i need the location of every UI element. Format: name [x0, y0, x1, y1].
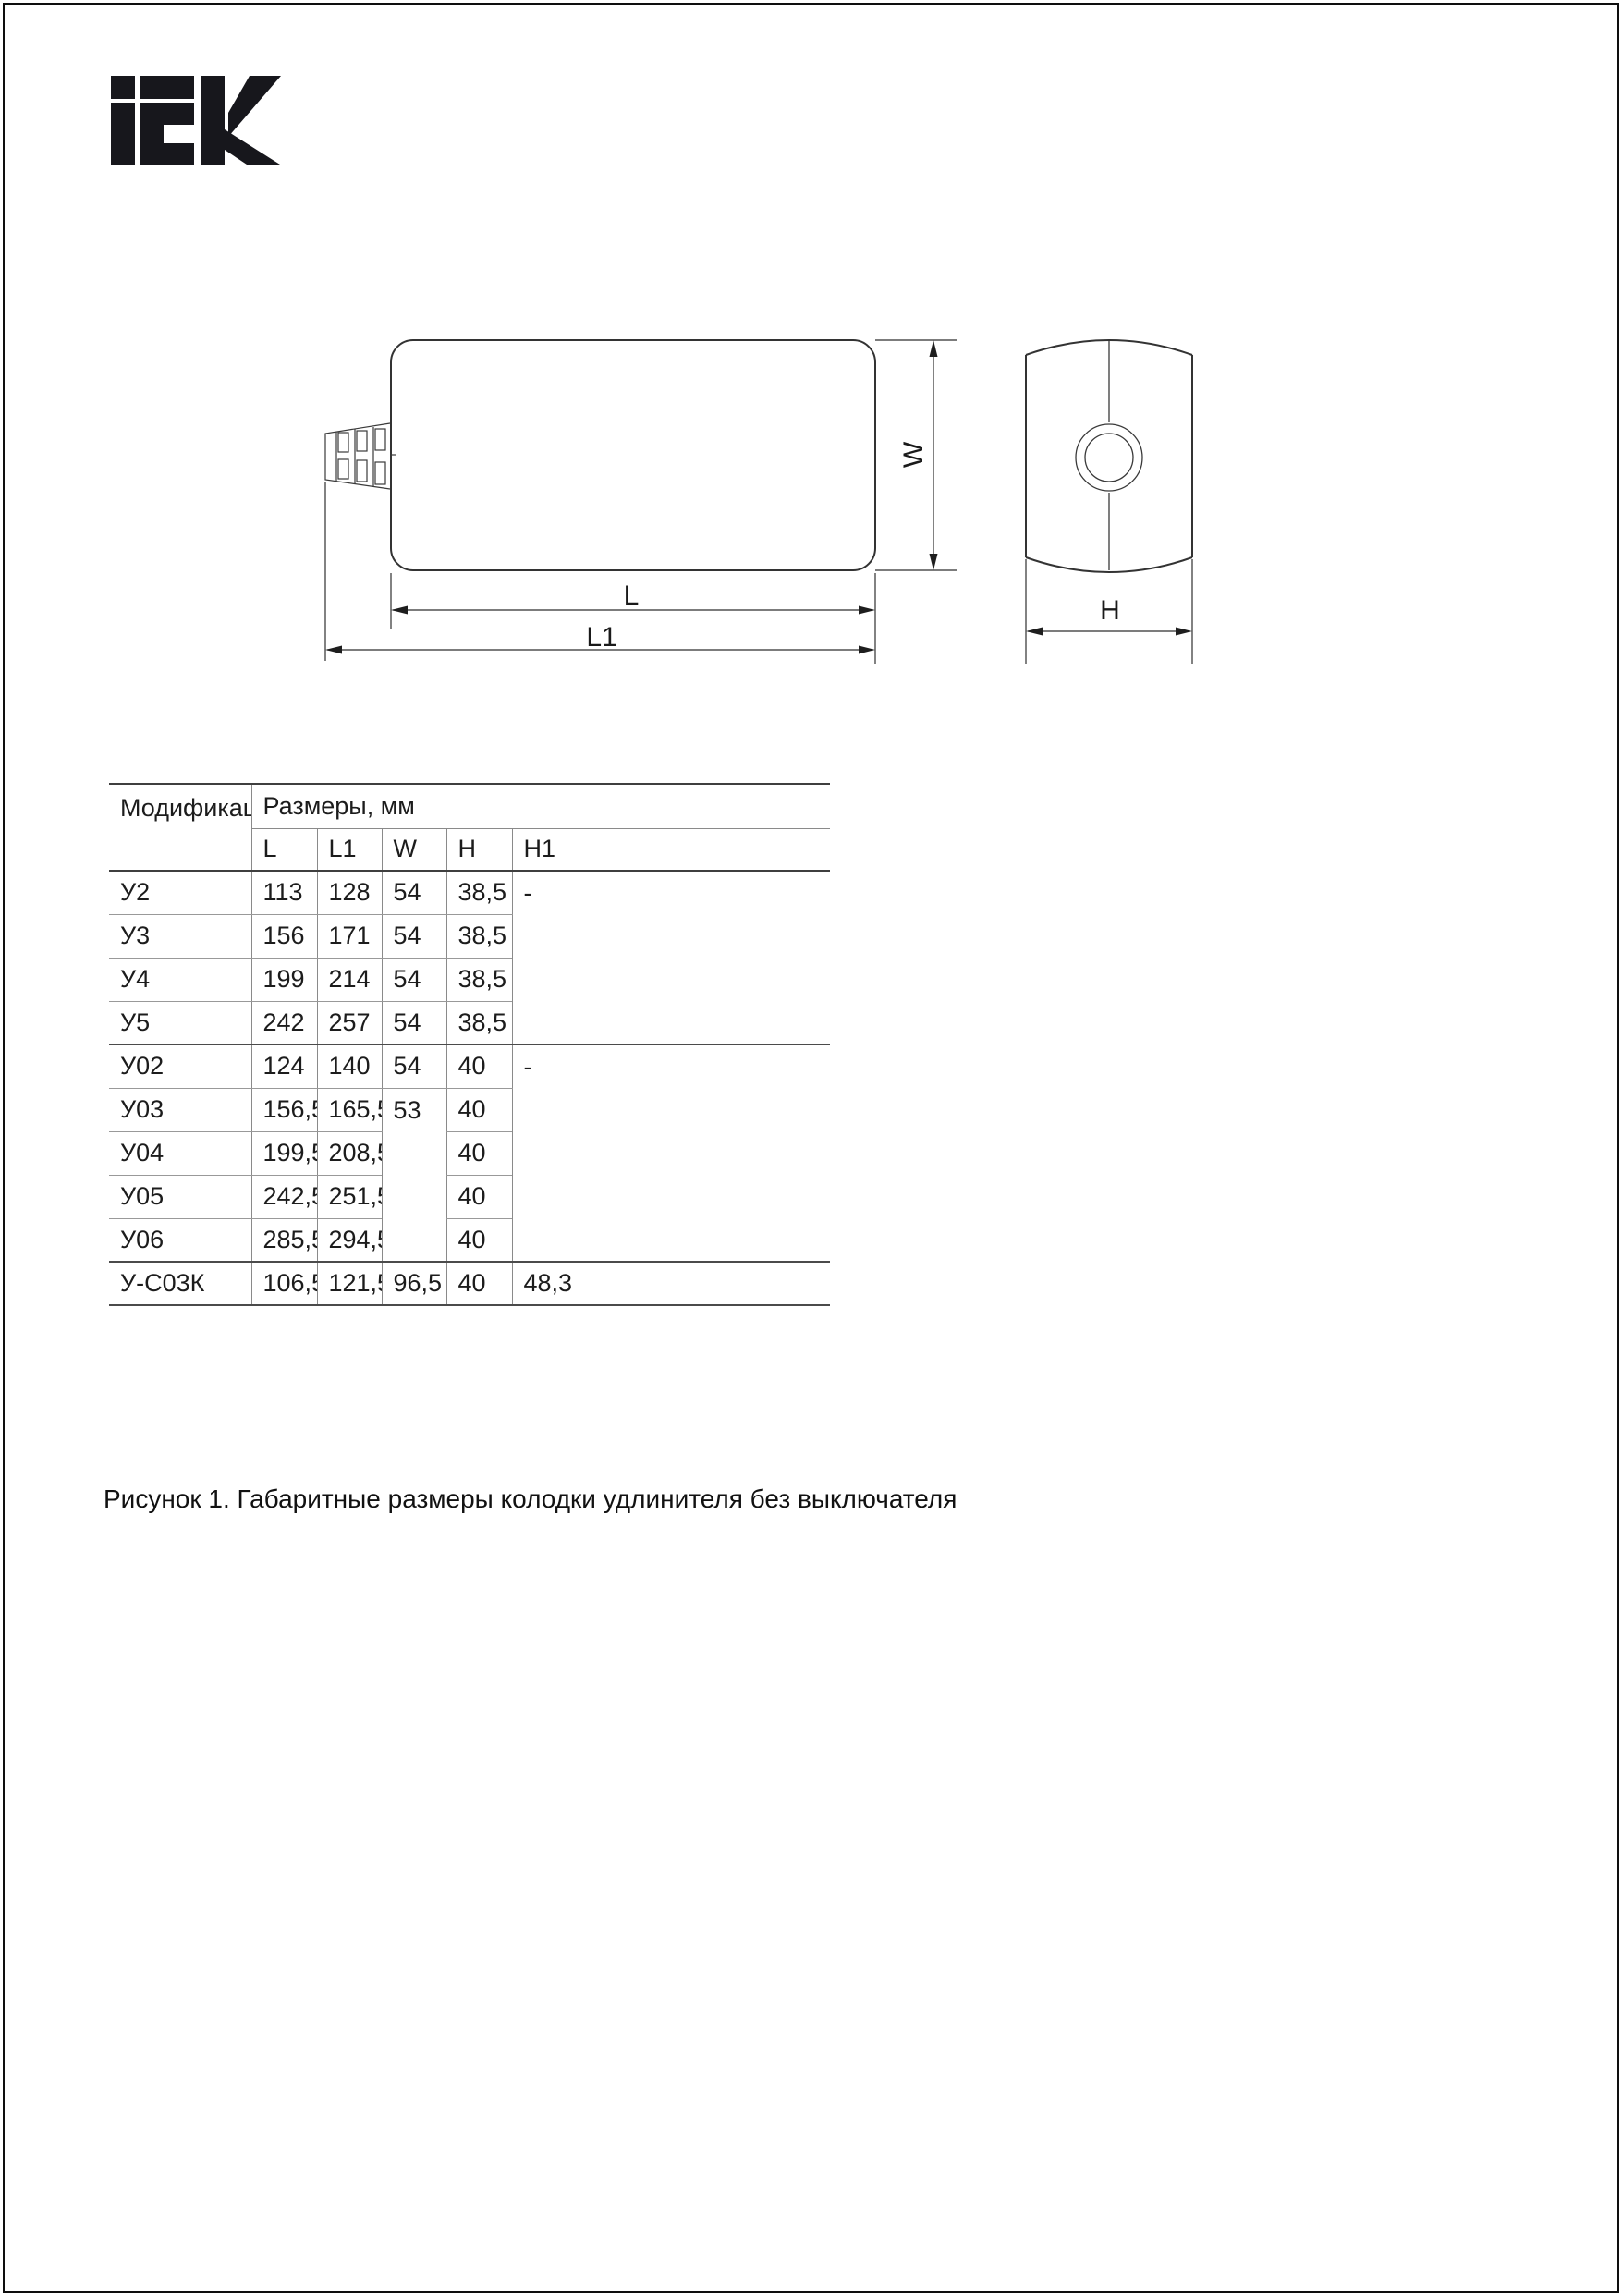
cell-w: 54 — [382, 871, 446, 914]
column-group-header-dimensions: Размеры, мм — [251, 784, 830, 828]
cell-h: 40 — [446, 1175, 512, 1218]
document-page: { "page": { "background": "#ffffff", "fr… — [0, 0, 1622, 2296]
column-header-h1: H1 — [512, 828, 830, 871]
cell-l: 106,5 — [251, 1262, 317, 1305]
cell-l: 156,5 — [251, 1088, 317, 1131]
cell-l1: 251,5 — [317, 1175, 382, 1218]
cell-l: 199,5 — [251, 1131, 317, 1175]
cell-l1: 121,5 — [317, 1262, 382, 1305]
table-row: У2 113 128 54 38,5 - — [109, 871, 830, 914]
cell-h1-merged: - — [512, 871, 830, 1044]
column-header-l1: L1 — [317, 828, 382, 871]
dimension-label-l1: L1 — [580, 624, 623, 652]
cell-l1: 257 — [317, 1001, 382, 1044]
cell-l1: 294,5 — [317, 1218, 382, 1262]
cell-l1: 214 — [317, 958, 382, 1001]
iek-logo-letters — [111, 76, 281, 165]
cell-h: 40 — [446, 1131, 512, 1175]
socket-outer-circle — [1076, 424, 1142, 491]
cell-h1: 48,3 — [512, 1262, 830, 1305]
table-header-row-1: Модификация Размеры, мм — [109, 784, 830, 828]
cell-l: 285,5 — [251, 1218, 317, 1262]
cell-l1: 140 — [317, 1044, 382, 1088]
column-header-modification: Модификация — [109, 784, 251, 871]
cell-modification: У-С03К — [109, 1262, 251, 1305]
cell-modification: У05 — [109, 1175, 251, 1218]
iek-logo — [111, 76, 281, 165]
logo-k-stem — [201, 76, 225, 165]
cell-h: 40 — [446, 1262, 512, 1305]
cell-l: 242 — [251, 1001, 317, 1044]
extension-block-body — [391, 340, 875, 570]
cell-h: 38,5 — [446, 871, 512, 914]
cell-w: 54 — [382, 1044, 446, 1088]
column-header-h: H — [446, 828, 512, 871]
dimension-label-w: W — [900, 439, 928, 470]
cell-modification: У4 — [109, 958, 251, 1001]
socket-inner-circle — [1085, 434, 1133, 482]
cell-w: 96,5 — [382, 1262, 446, 1305]
cell-l: 156 — [251, 914, 317, 958]
cell-l: 124 — [251, 1044, 317, 1088]
logo-i-body — [111, 103, 135, 165]
cell-l1: 171 — [317, 914, 382, 958]
table-row: У-С03К 106,5 121,5 96,5 40 48,3 — [109, 1262, 830, 1305]
cell-h: 38,5 — [446, 958, 512, 1001]
cell-h: 40 — [446, 1088, 512, 1131]
cell-modification: У04 — [109, 1131, 251, 1175]
cable-gland — [325, 423, 396, 489]
cell-w: 54 — [382, 1001, 446, 1044]
cell-l: 199 — [251, 958, 317, 1001]
figure-caption: Рисунок 1. Габаритные размеры колодки уд… — [104, 1484, 957, 1514]
table-row: У02 124 140 54 40 - — [109, 1044, 830, 1088]
dimension-drawing — [305, 324, 1229, 684]
cell-h: 40 — [446, 1218, 512, 1262]
cell-h1-merged: - — [512, 1044, 830, 1262]
cell-w-merged: 53 — [382, 1088, 446, 1262]
dimension-label-h: H — [1095, 597, 1125, 625]
cell-l: 242,5 — [251, 1175, 317, 1218]
cell-l: 113 — [251, 871, 317, 914]
cell-modification: У3 — [109, 914, 251, 958]
logo-k-upper-arm — [228, 76, 281, 137]
cell-h: 38,5 — [446, 1001, 512, 1044]
cable-gland-outline — [325, 423, 390, 489]
cell-modification: У2 — [109, 871, 251, 914]
cell-l1: 165,5 — [317, 1088, 382, 1131]
front-view — [391, 340, 875, 570]
logo-e-top-bar — [140, 76, 194, 99]
cell-modification: У03 — [109, 1088, 251, 1131]
cable-gland-ribs — [336, 427, 373, 486]
logo-i-dot — [111, 76, 135, 99]
cell-l1: 128 — [317, 871, 382, 914]
cell-l1: 208,5 — [317, 1131, 382, 1175]
dimensions-table: Модификация Размеры, мм L L1 W H H1 У2 1… — [109, 783, 830, 1306]
cell-modification: У5 — [109, 1001, 251, 1044]
logo-e-lower — [140, 103, 194, 165]
cell-w: 54 — [382, 914, 446, 958]
cell-h: 38,5 — [446, 914, 512, 958]
cell-modification: У06 — [109, 1218, 251, 1262]
cell-h: 40 — [446, 1044, 512, 1088]
cell-modification: У02 — [109, 1044, 251, 1088]
side-view-details — [1076, 341, 1142, 570]
cell-w: 54 — [382, 958, 446, 1001]
column-header-w: W — [382, 828, 446, 871]
dimension-label-l: L — [617, 582, 645, 610]
column-header-l: L — [251, 828, 317, 871]
logo-k-lower-arm — [225, 129, 280, 165]
